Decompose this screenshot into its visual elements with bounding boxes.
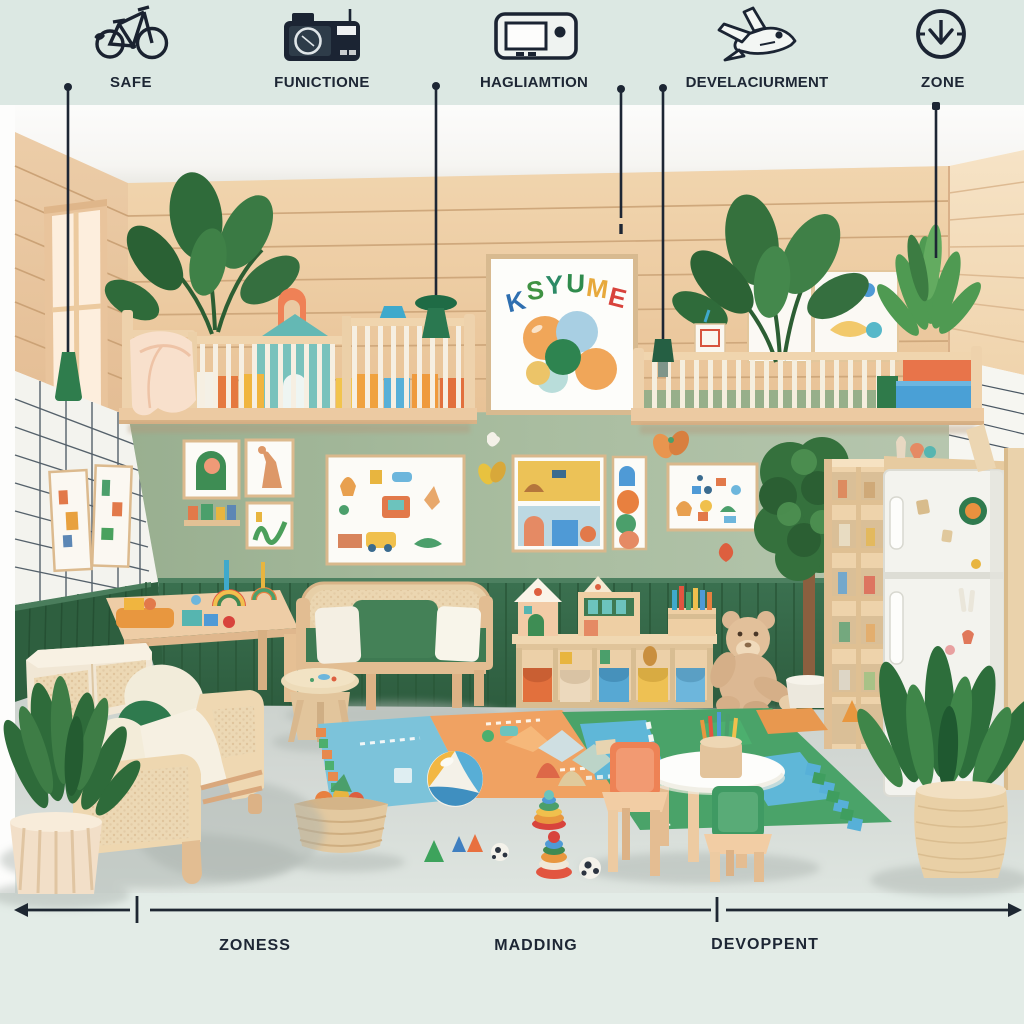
svg-text:MADDING: MADDING <box>494 937 577 954</box>
svg-text:ZONE: ZONE <box>921 74 965 91</box>
svg-text:SAFE: SAFE <box>110 74 152 91</box>
svg-text:ZONESS: ZONESS <box>219 937 291 954</box>
svg-text:DEVELACIURMENT: DEVELACIURMENT <box>686 74 829 91</box>
svg-text:FUNICTIONE: FUNICTIONE <box>274 74 370 91</box>
svg-text:DEVOPPENT: DEVOPPENT <box>711 936 819 953</box>
svg-text:HAGLIAMTION: HAGLIAMTION <box>480 74 588 91</box>
svg-text:Y: Y <box>545 269 564 300</box>
svg-text:M: M <box>584 272 610 305</box>
svg-text:U: U <box>566 268 586 299</box>
